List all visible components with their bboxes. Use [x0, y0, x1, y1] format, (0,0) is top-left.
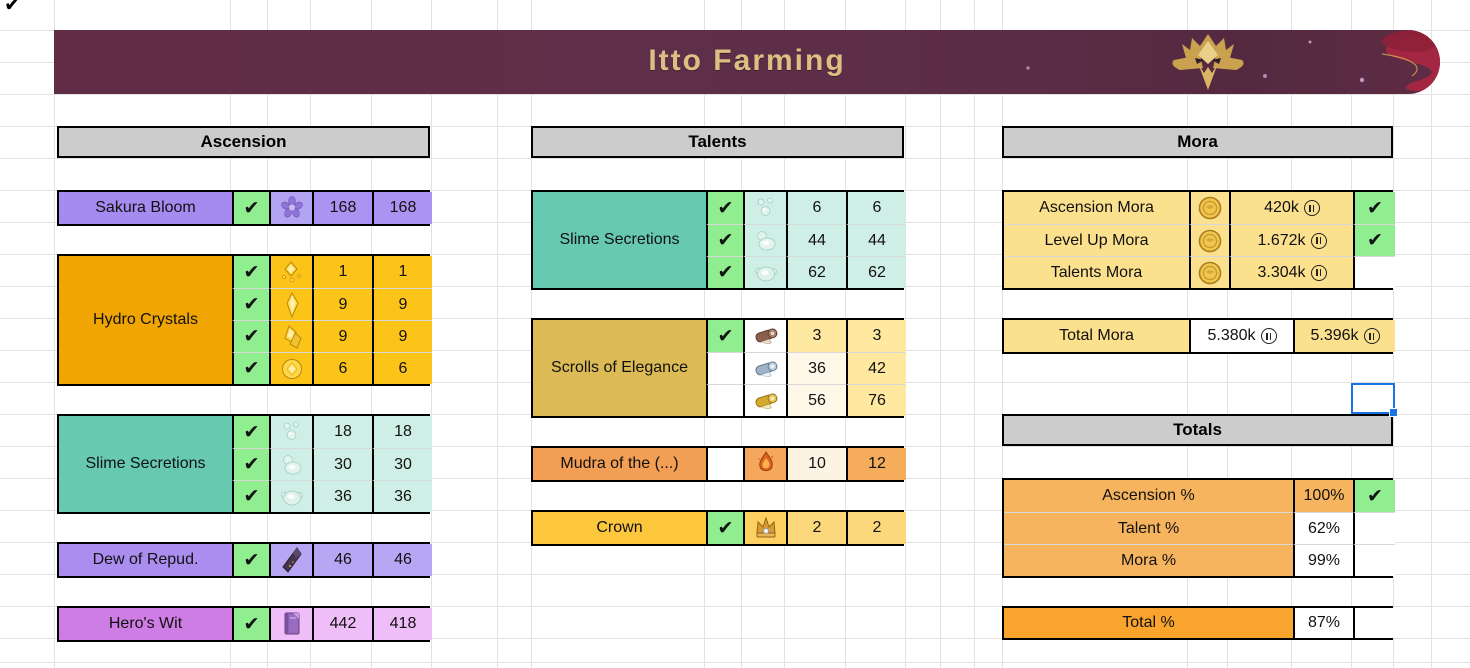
have-cell[interactable]: 56 [786, 384, 846, 416]
check-icon: ✔ [244, 615, 260, 634]
material-group-talents-3: Crown✔22 [531, 510, 904, 546]
mora-value: 3.304k [1257, 264, 1305, 282]
check-icon: ✔ [1367, 487, 1383, 506]
mora-row-label[interactable]: Level Up Mora [1004, 224, 1189, 256]
scroll-guide-icon [752, 355, 780, 383]
totals-row-label[interactable]: Ascension % [1004, 480, 1293, 512]
scroll-philosophies-icon [752, 387, 780, 415]
have-cell[interactable]: 9 [312, 320, 372, 352]
sakura-bloom-icon-cell[interactable] [269, 192, 312, 224]
sheet-title: Itto Farming [54, 44, 1440, 78]
gridline-v [1431, 0, 1432, 668]
check-icon: ✔ [718, 519, 734, 538]
heros-wit-icon-cell[interactable] [269, 608, 312, 640]
mora-unit-icon [1364, 328, 1380, 344]
slime-concentrate-icon-cell[interactable] [743, 256, 786, 288]
have-cell[interactable]: 6 [312, 352, 372, 384]
material-group-talents-2: Mudra of the (...)1012 [531, 446, 904, 482]
check-cell[interactable]: ✔ [706, 256, 743, 288]
gridline-h [0, 158, 1470, 159]
geo-chunk-icon [278, 323, 306, 351]
gridline-h [0, 94, 1470, 95]
check-cell[interactable]: ✔ [232, 352, 269, 384]
mora-value-cell[interactable]: 420k [1229, 192, 1353, 224]
totals-value-cell[interactable]: 62% [1293, 512, 1353, 544]
have-cell[interactable]: 2 [786, 512, 846, 544]
check-icon: ✔ [1367, 231, 1383, 250]
crown-icon-cell[interactable] [743, 512, 786, 544]
total-mora-have-cell[interactable]: 5.380k [1189, 320, 1293, 352]
gridline-v [497, 0, 498, 668]
check-icon: ✔ [244, 551, 260, 570]
sakura-bloom-icon [278, 194, 306, 222]
need-cell[interactable]: 18 [372, 416, 432, 448]
check-icon: ✔ [244, 487, 260, 506]
heros-wit-icon [278, 610, 306, 638]
check-cell[interactable]: ✔ [232, 416, 269, 448]
have-cell[interactable]: 36 [312, 480, 372, 512]
scroll-philosophies-icon-cell[interactable] [743, 384, 786, 416]
check-cell[interactable]: ✔ [232, 448, 269, 480]
material-group-ascension-4: Hero's Wit✔442418 [57, 606, 430, 642]
total-pct-row: Total %87% [1002, 606, 1393, 640]
mora-row-label[interactable]: Ascension Mora [1004, 192, 1189, 224]
have-cell[interactable]: 30 [312, 448, 372, 480]
slime-concentrate-icon [278, 483, 306, 511]
have-cell[interactable]: 18 [312, 416, 372, 448]
need-cell[interactable]: 36 [372, 480, 432, 512]
total-mora-need-cell[interactable]: 5.396k [1293, 320, 1395, 352]
mora-row-label[interactable]: Talents Mora [1004, 256, 1189, 288]
totals-row-label[interactable]: Talent % [1004, 512, 1293, 544]
have-cell[interactable]: 62 [786, 256, 846, 288]
need-cell[interactable]: 6 [846, 192, 906, 224]
coin-cell[interactable] [1189, 256, 1229, 288]
mora-value: 420k [1264, 199, 1299, 217]
totals-table: Ascension %100%✔Talent %62%Mora %99% [1002, 478, 1393, 578]
section-header-talents[interactable]: Talents [531, 126, 904, 158]
slime-secretions-icon-cell[interactable] [743, 224, 786, 256]
check-icon: ✔ [1367, 199, 1383, 218]
need-cell[interactable]: 30 [372, 448, 432, 480]
check-cell[interactable]: ✔ [1353, 480, 1395, 512]
material-group-ascension-3: Dew of Repud.✔4646 [57, 542, 430, 578]
material-group-talents-1: Scrolls of Elegance✔3336425676 [531, 318, 904, 418]
spreadsheet: ✔ Itto Farming AscensionSakura [0, 0, 1470, 668]
mora-value-cell[interactable]: 1.672k [1229, 224, 1353, 256]
have-cell[interactable]: 36 [786, 352, 846, 384]
mora-unit-icon [1311, 265, 1327, 281]
total-pct-label[interactable]: Total % [1004, 608, 1293, 638]
slime-concentrate-icon-cell[interactable] [269, 480, 312, 512]
check-icon: ✔ [244, 199, 260, 218]
geo-sliver-icon [278, 258, 306, 286]
check-cell[interactable]: ✔ [706, 224, 743, 256]
fill-handle[interactable] [1389, 408, 1398, 417]
coin-icon [1196, 227, 1224, 255]
totals-value-cell[interactable]: 99% [1293, 544, 1353, 576]
check-cell[interactable] [706, 384, 743, 416]
material-label[interactable]: Scrolls of Elegance [533, 320, 706, 416]
slime-secretions-icon [278, 451, 306, 479]
selected-cell[interactable] [1351, 383, 1395, 414]
slime-condensate-icon [752, 194, 780, 222]
material-label[interactable]: Crown [533, 512, 706, 544]
material-label[interactable]: Mudra of the (...) [533, 448, 706, 480]
totals-value-cell[interactable]: 100% [1293, 480, 1353, 512]
sparkle-icon [1360, 78, 1364, 82]
check-icon: ✔ [244, 263, 260, 282]
scroll-guide-icon-cell[interactable] [743, 352, 786, 384]
gridline-v [54, 0, 55, 668]
total-mora-label[interactable]: Total Mora [1004, 320, 1189, 352]
material-group-talents-0: Slime Secretions✔66✔4444✔6262 [531, 190, 904, 290]
check-icon: ✔ [244, 455, 260, 474]
dew-icon-cell[interactable] [269, 544, 312, 576]
totals-row-label[interactable]: Mora % [1004, 544, 1293, 576]
material-group-ascension-2: Slime Secretions✔1818✔3030✔3636 [57, 414, 430, 514]
check-icon: ✔ [718, 199, 734, 218]
check-cell[interactable]: ✔ [232, 256, 269, 288]
section-header-ascension[interactable]: Ascension [57, 126, 430, 158]
gridline-v [940, 0, 941, 668]
mora-value: 5.380k [1207, 327, 1255, 345]
mora-value: 5.396k [1310, 327, 1358, 345]
mora-unit-icon [1304, 200, 1320, 216]
material-label[interactable]: Slime Secretions [59, 416, 232, 512]
check-icon: ✔ [244, 423, 260, 442]
need-cell[interactable]: 12 [846, 448, 906, 480]
corner-check-mark: ✔ [4, 0, 21, 16]
have-cell[interactable]: 168 [312, 192, 372, 224]
need-cell[interactable]: 62 [846, 256, 906, 288]
material-label[interactable]: Dew of Repud. [59, 544, 232, 576]
check-icon: ✔ [244, 295, 260, 314]
mora-unit-icon [1311, 233, 1327, 249]
coin-cell[interactable] [1189, 192, 1229, 224]
geo-sliver-icon-cell[interactable] [269, 256, 312, 288]
material-label[interactable]: Sakura Bloom [59, 192, 232, 224]
have-cell[interactable]: 9 [312, 288, 372, 320]
need-cell[interactable]: 76 [846, 384, 906, 416]
need-cell[interactable]: 418 [372, 608, 432, 640]
section-header-mora[interactable]: Mora [1002, 126, 1393, 158]
mora-value: 1.672k [1257, 232, 1305, 250]
mora-unit-icon [1261, 328, 1277, 344]
blank-cell[interactable] [1353, 608, 1395, 638]
mora-table: Ascension Mora420k✔Level Up Mora1.672k✔T… [1002, 190, 1393, 290]
check-cell[interactable] [706, 352, 743, 384]
have-cell[interactable]: 1 [312, 256, 372, 288]
geo-fragment-icon [278, 291, 306, 319]
need-cell[interactable]: 2 [846, 512, 906, 544]
have-cell[interactable]: 3 [786, 320, 846, 352]
mora-value-cell[interactable]: 3.304k [1229, 256, 1353, 288]
slime-condensate-icon-cell[interactable] [743, 192, 786, 224]
need-cell[interactable]: 44 [846, 224, 906, 256]
gridline-v [974, 0, 975, 668]
dew-icon [278, 546, 306, 574]
gridline-h [0, 662, 1470, 663]
check-icon: ✔ [244, 327, 260, 346]
check-cell[interactable] [1353, 512, 1395, 544]
need-cell[interactable]: 1 [372, 256, 432, 288]
mudra-icon-cell[interactable] [743, 448, 786, 480]
need-cell[interactable]: 46 [372, 544, 432, 576]
need-cell[interactable]: 3 [846, 320, 906, 352]
need-cell[interactable]: 168 [372, 192, 432, 224]
banner: Itto Farming [54, 30, 1440, 94]
check-cell[interactable]: ✔ [232, 544, 269, 576]
check-icon: ✔ [244, 359, 260, 378]
check-cell[interactable] [1353, 544, 1395, 576]
have-cell[interactable]: 6 [786, 192, 846, 224]
crown-icon [752, 514, 780, 542]
geo-gemstone-icon-cell[interactable] [269, 352, 312, 384]
check-icon: ✔ [718, 231, 734, 250]
coin-icon [1196, 194, 1224, 222]
check-cell[interactable]: ✔ [232, 608, 269, 640]
slime-concentrate-icon [752, 259, 780, 287]
have-cell[interactable]: 10 [786, 448, 846, 480]
check-cell[interactable]: ✔ [232, 192, 269, 224]
check-cell[interactable] [706, 448, 743, 480]
total-mora-row: Total Mora5.380k5.396k [1002, 318, 1393, 354]
slime-condensate-icon-cell[interactable] [269, 416, 312, 448]
section-header-totals[interactable]: Totals [1002, 414, 1393, 446]
have-cell[interactable]: 46 [312, 544, 372, 576]
need-cell[interactable]: 6 [372, 352, 432, 384]
material-label[interactable]: Hero's Wit [59, 608, 232, 640]
geo-fragment-icon-cell[interactable] [269, 288, 312, 320]
material-label[interactable]: Slime Secretions [533, 192, 706, 288]
slime-secretions-icon-cell[interactable] [269, 448, 312, 480]
check-cell[interactable] [1353, 256, 1395, 288]
total-pct-value-cell[interactable]: 87% [1293, 608, 1353, 638]
coin-cell[interactable] [1189, 224, 1229, 256]
check-cell[interactable]: ✔ [232, 320, 269, 352]
check-cell[interactable]: ✔ [706, 512, 743, 544]
check-cell[interactable]: ✔ [706, 320, 743, 352]
check-icon: ✔ [718, 327, 734, 346]
scroll-teachings-icon [752, 322, 780, 350]
coin-icon [1196, 259, 1224, 287]
material-label[interactable]: Hydro Crystals [59, 256, 232, 384]
slime-condensate-icon [278, 418, 306, 446]
check-cell[interactable]: ✔ [232, 480, 269, 512]
mudra-icon [752, 450, 780, 478]
material-group-ascension-1: Hydro Crystals✔11✔99✔99✔66 [57, 254, 430, 386]
check-cell[interactable]: ✔ [1353, 224, 1395, 256]
need-cell[interactable]: 42 [846, 352, 906, 384]
geo-gemstone-icon [278, 355, 306, 383]
check-cell[interactable]: ✔ [232, 288, 269, 320]
material-group-ascension-0: Sakura Bloom✔168168 [57, 190, 430, 226]
geo-chunk-icon-cell[interactable] [269, 320, 312, 352]
have-cell[interactable]: 44 [786, 224, 846, 256]
need-cell[interactable]: 9 [372, 288, 432, 320]
need-cell[interactable]: 9 [372, 320, 432, 352]
scroll-teachings-icon-cell[interactable] [743, 320, 786, 352]
slime-secretions-icon [752, 227, 780, 255]
check-cell[interactable]: ✔ [706, 192, 743, 224]
check-icon: ✔ [718, 263, 734, 282]
have-cell[interactable]: 442 [312, 608, 372, 640]
check-cell[interactable]: ✔ [1353, 192, 1395, 224]
